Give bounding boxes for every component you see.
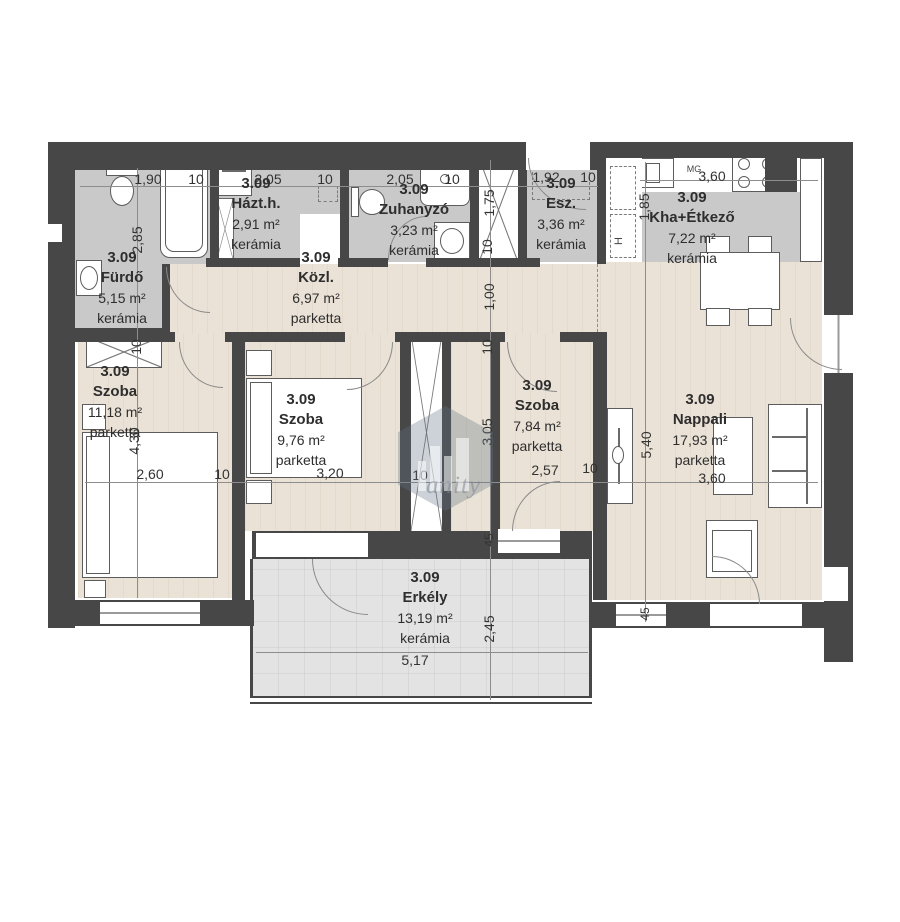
fridge-label: H (613, 237, 625, 245)
dim-szoba3-width: 2,57 (531, 462, 558, 478)
terrace-door-living (710, 604, 802, 626)
dining-chair-3 (706, 308, 730, 326)
sofa (768, 404, 822, 508)
dim-gardrob-height: 1,75 (481, 189, 497, 216)
room-label-furdo: 3.09 Fürdő 5,15 m² kerámia (97, 248, 147, 328)
room-label-hazth: 3.09 Házt.h. 2,91 m² kerámia (231, 174, 281, 254)
washing-machine-line (222, 170, 246, 172)
dim-wall10-b: 10 (317, 171, 333, 187)
wall-bath-household (210, 142, 219, 264)
nightstand-1b (84, 580, 106, 598)
dim-wall10-h: 10 (479, 239, 495, 255)
sofa-seam-2 (772, 470, 806, 472)
dining-chair-4 (748, 308, 772, 326)
wall-duct-column (765, 142, 797, 192)
dim-nappali-height: 5,40 (638, 431, 654, 458)
room-label-esz: 3.09 Esz. 3,36 m² kerámia (536, 174, 586, 254)
floor-corridor (162, 264, 600, 334)
dim-furdo-width: 1,90 (134, 171, 161, 187)
toilet-tank-2 (351, 187, 359, 217)
dim-wall10-j: 10 (479, 339, 495, 355)
window-bedroom1 (100, 602, 200, 624)
room-label-szoba1: 3.09 Szoba 11,18 m² parketta (88, 362, 142, 442)
tall-cabinet (800, 158, 822, 262)
watermark-text: anity (426, 472, 481, 500)
toilet-bowl-1 (110, 176, 134, 206)
room-label-szoba3: 3.09 Szoba 7,84 m² parketta (512, 376, 563, 456)
nightstand-2b (246, 480, 272, 504)
balcony-railing-front (250, 696, 592, 704)
wall-notch-left (48, 224, 62, 242)
window-bedroom3 (498, 529, 560, 553)
stove-burner-1 (738, 158, 750, 170)
room-label-erkely: 3.09 Erkély 13,19 m² kerámia (397, 568, 452, 648)
balcony-door-bedroom2 (256, 533, 368, 557)
dim-erkely-height: 2,45 (481, 615, 497, 642)
wall-left (48, 142, 75, 628)
dim-konyha-width: 3,60 (698, 168, 725, 184)
dimline-right-v (645, 162, 646, 622)
fridge-dashed-1 (610, 166, 636, 210)
floor-plan: 1,90 10 2,05 10 2,05 10 1,92 10 3,60 2,6… (0, 0, 900, 922)
dim-erkely-width: 5,17 (401, 652, 428, 668)
wall-corridor-north-1 (206, 258, 300, 267)
wall-bedroom1-2 (232, 332, 245, 600)
balcony-railing-right (589, 559, 592, 704)
vestibule-dashed-box (318, 186, 338, 202)
dishwasher-label: MG (687, 164, 702, 174)
room-label-kozl: 3.09 Közl. 6,97 m² parketta (291, 248, 342, 328)
dimline-kitchen (640, 180, 818, 181)
dim-wall10-a: 10 (188, 171, 204, 187)
balcony-railing-left (250, 559, 253, 704)
wall-entry-fridge (597, 142, 606, 264)
room-label-zuhanyzo: 3.09 Zuhanyzó 3,23 m² kerámia (379, 180, 449, 260)
stove-burner-3 (738, 176, 750, 188)
corridor-dining-boundary (597, 264, 598, 332)
room-label-szoba2: 3.09 Szoba 9,76 m² parketta (276, 390, 327, 470)
wall-household-shower (340, 142, 349, 264)
dim-szoba1-width: 2,60 (136, 466, 163, 482)
washbasin-1-bowl (80, 266, 98, 290)
wall-corridor-south-1 (75, 332, 175, 342)
nightstand-2a (246, 350, 272, 376)
wall-notch-bottom-right (824, 567, 848, 601)
tv-screen (612, 446, 624, 464)
dim-wall10-i: 10 (128, 339, 144, 355)
sofa-back-line (806, 408, 808, 504)
bed-1-pillow (86, 436, 110, 574)
dim-wall45-b: 45 (638, 607, 652, 620)
wall-shower-wardrobe (470, 142, 479, 264)
sofa-seam-1 (772, 436, 806, 438)
room-label-konyha: 3.09 Kha+Étkező 7,22 m² kerámia (649, 188, 734, 268)
dim-wall10-e: 10 (214, 466, 230, 482)
dim-wall10-g: 10 (582, 460, 598, 476)
room-label-nappali: 3.09 Nappali 17,93 m² parketta (672, 390, 727, 470)
bed-2-pillow (250, 382, 272, 474)
wall-top-right (600, 142, 853, 158)
dim-nappali-width: 3,60 (698, 470, 725, 486)
dim-kozl-width: 1,00 (481, 283, 497, 310)
dim-wall45-a: 45 (482, 533, 496, 546)
